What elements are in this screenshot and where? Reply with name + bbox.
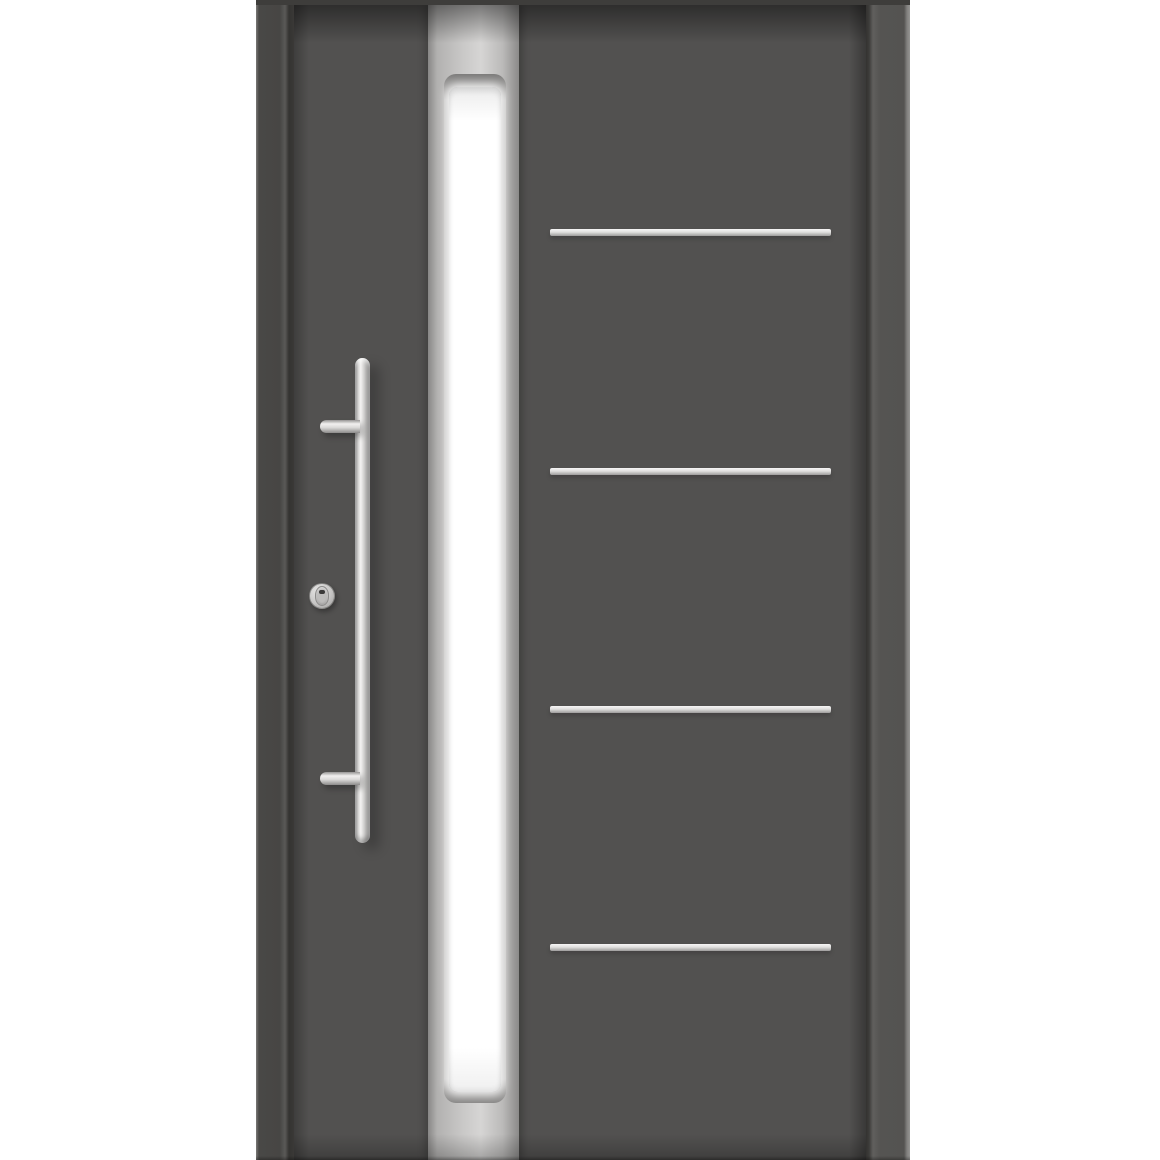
handle-bracket-bottom bbox=[320, 772, 360, 785]
decor-strip bbox=[550, 706, 831, 713]
door-leaf bbox=[294, 5, 866, 1160]
decor-strip bbox=[550, 468, 831, 475]
door-frame-top bbox=[256, 0, 910, 5]
decor-strip bbox=[550, 229, 831, 236]
frosted-glass-panel bbox=[449, 87, 501, 1092]
keyhole-icon bbox=[319, 590, 325, 594]
lock-escutcheon bbox=[309, 583, 335, 609]
entry-door bbox=[256, 0, 910, 1160]
decor-strip bbox=[550, 944, 831, 951]
photo-canvas: { "image": { "type": "product-photo", "s… bbox=[0, 0, 1160, 1160]
handle-bracket-top bbox=[320, 420, 360, 433]
lighting-overlay bbox=[294, 5, 866, 1160]
glass-recess bbox=[444, 74, 506, 1103]
door-frame-right bbox=[866, 0, 910, 1160]
lock-cylinder-plate bbox=[315, 586, 329, 606]
door-frame-left bbox=[256, 0, 294, 1160]
